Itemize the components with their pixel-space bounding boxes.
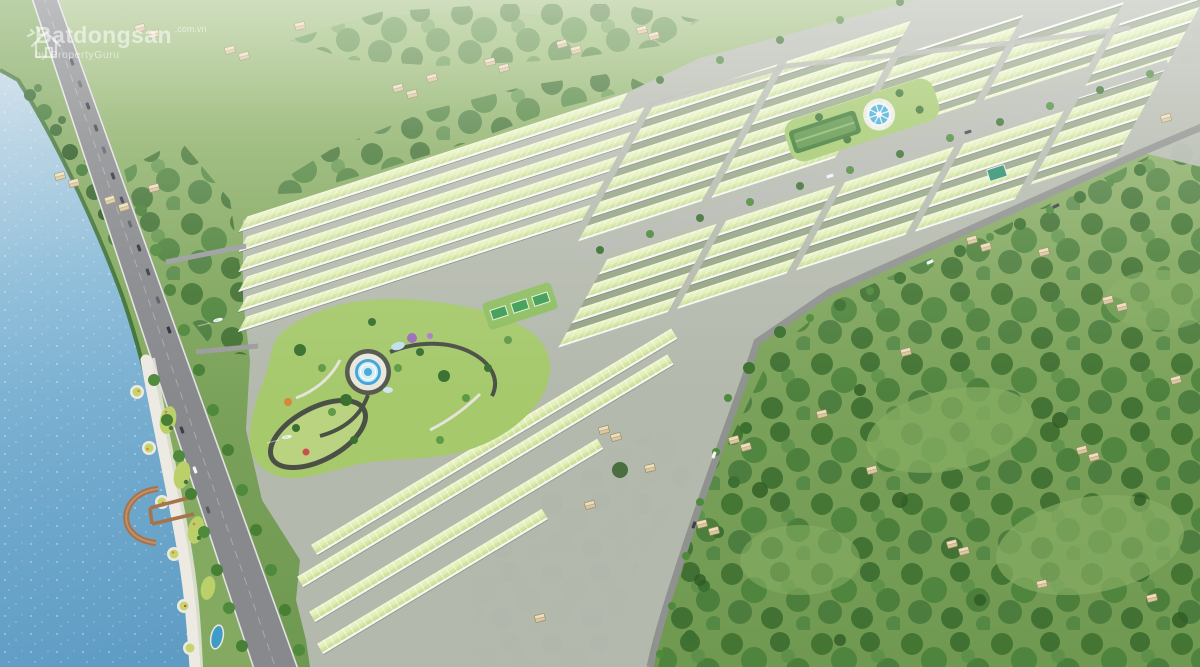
aerial-render-scene: Batdongsan .com.vn by PropertyGuru [0,0,1200,667]
render-canvas [0,0,1200,667]
haze-overlay [0,0,1200,667]
